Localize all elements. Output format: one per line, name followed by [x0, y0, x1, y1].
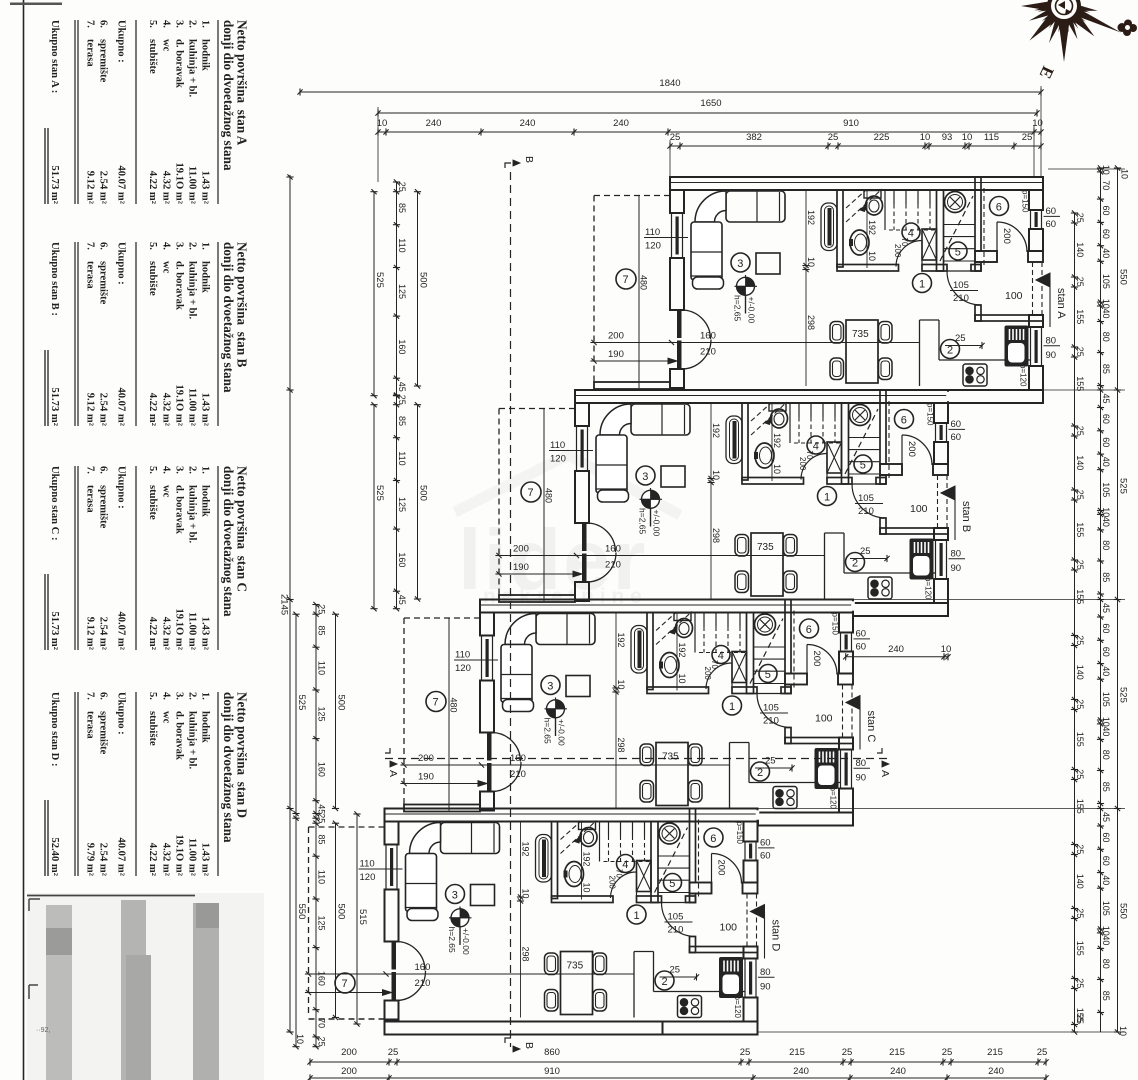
- svg-text:100: 100: [1005, 290, 1023, 302]
- svg-text:p=120: p=120: [924, 577, 933, 600]
- svg-text:2: 2: [947, 344, 953, 356]
- svg-text:60: 60: [951, 432, 962, 443]
- svg-text:85: 85: [1101, 782, 1111, 792]
- svg-text:105: 105: [1101, 274, 1111, 289]
- svg-text:7: 7: [528, 487, 534, 499]
- svg-text:25: 25: [1075, 560, 1085, 570]
- svg-text:100: 100: [720, 922, 738, 934]
- svg-text:860: 860: [544, 1047, 560, 1058]
- svg-text:2.54 m2: 2.54 m2: [98, 617, 109, 650]
- svg-text:60: 60: [1101, 856, 1111, 866]
- svg-text:200: 200: [798, 457, 807, 471]
- svg-text:125: 125: [397, 497, 407, 512]
- svg-text:25: 25: [1075, 277, 1085, 287]
- svg-text:155: 155: [1075, 799, 1085, 814]
- svg-text:1.hodnik: 1.hodnik: [200, 242, 211, 293]
- svg-text:10: 10: [806, 257, 816, 267]
- svg-text:60: 60: [760, 838, 771, 849]
- svg-text:25: 25: [1075, 213, 1085, 223]
- svg-text:stan C: stan C: [865, 711, 877, 743]
- svg-text:240: 240: [613, 118, 629, 129]
- svg-text:+/-0.00: +/-0.00: [461, 928, 471, 955]
- svg-text:7: 7: [433, 697, 439, 709]
- svg-text:Ukupno stan B :: Ukupno stan B :: [49, 242, 60, 316]
- svg-text:240: 240: [520, 118, 536, 129]
- svg-text:52.40 m2: 52.40 m2: [49, 837, 60, 876]
- svg-text:105: 105: [1101, 692, 1111, 707]
- svg-text:donji dio dvoetažnog stana: donji dio dvoetažnog stana: [221, 242, 236, 393]
- svg-text:10: 10: [616, 680, 626, 690]
- svg-text:1.hodnik: 1.hodnik: [200, 466, 211, 517]
- svg-text:298: 298: [521, 947, 531, 962]
- svg-text:200: 200: [703, 667, 712, 681]
- svg-text:60: 60: [1101, 832, 1111, 842]
- svg-text:200: 200: [341, 1066, 357, 1077]
- svg-text:192: 192: [521, 842, 531, 857]
- svg-text:125: 125: [397, 284, 407, 299]
- svg-text:25: 25: [860, 546, 871, 557]
- svg-text:155: 155: [1075, 376, 1085, 391]
- svg-text:210: 210: [953, 293, 969, 304]
- svg-text:210: 210: [700, 347, 716, 358]
- svg-text:Ukupno :: Ukupno :: [116, 692, 127, 735]
- svg-text:25: 25: [740, 1047, 751, 1058]
- svg-text:45: 45: [397, 382, 407, 392]
- svg-text:550: 550: [1118, 903, 1129, 919]
- svg-text:h=2.65: h=2.65: [447, 927, 457, 954]
- svg-text:210: 210: [763, 716, 779, 727]
- svg-text:B: B: [523, 1042, 535, 1049]
- svg-text:25: 25: [317, 813, 327, 823]
- svg-text:10: 10: [867, 251, 877, 261]
- svg-text:25: 25: [842, 1047, 853, 1058]
- svg-text:25: 25: [765, 756, 776, 767]
- svg-text:25: 25: [1075, 1014, 1085, 1024]
- svg-text:stan B: stan B: [960, 501, 972, 532]
- svg-text:7.terasa: 7.terasa: [85, 242, 96, 289]
- svg-text:4.32 m2: 4.32 m2: [161, 617, 172, 650]
- svg-text:7: 7: [342, 978, 348, 990]
- svg-text:stan D: stan D: [770, 920, 782, 952]
- svg-text:10: 10: [1120, 169, 1130, 179]
- svg-text:192: 192: [677, 643, 687, 658]
- svg-text:25: 25: [1075, 426, 1085, 436]
- svg-text:200: 200: [716, 860, 727, 876]
- svg-text:p=120: p=120: [733, 996, 742, 1019]
- svg-text:85: 85: [1101, 572, 1111, 582]
- svg-text:45: 45: [1101, 394, 1111, 404]
- svg-text:p=150: p=150: [926, 403, 935, 426]
- svg-text:Ukupno stan A :: Ukupno stan A :: [49, 20, 60, 93]
- svg-text:60: 60: [1046, 219, 1057, 230]
- svg-text:B: B: [523, 156, 535, 163]
- svg-text:70: 70: [317, 1018, 327, 1028]
- svg-text:160: 160: [397, 339, 407, 354]
- svg-text:155: 155: [1075, 941, 1085, 956]
- svg-text:735: 735: [662, 752, 679, 763]
- svg-text:25: 25: [828, 132, 839, 143]
- svg-text:40.07 m2: 40.07 m2: [116, 611, 127, 650]
- svg-text:115: 115: [984, 132, 999, 143]
- svg-text:60: 60: [856, 629, 867, 640]
- svg-text:210: 210: [858, 506, 874, 517]
- svg-text:40: 40: [1101, 309, 1111, 319]
- svg-text:192: 192: [806, 210, 816, 225]
- svg-text:200: 200: [906, 441, 917, 457]
- svg-text:110: 110: [397, 451, 407, 465]
- svg-text:2: 2: [662, 976, 668, 988]
- svg-text:25: 25: [1037, 1047, 1048, 1058]
- svg-text:85: 85: [397, 203, 407, 213]
- svg-text:190: 190: [513, 562, 529, 573]
- svg-text:110: 110: [397, 238, 407, 252]
- svg-text:10: 10: [582, 883, 592, 893]
- svg-text:192: 192: [711, 423, 721, 438]
- svg-text:25: 25: [670, 132, 681, 143]
- svg-text:25: 25: [1075, 908, 1085, 918]
- svg-text:5: 5: [860, 459, 866, 471]
- svg-text:40: 40: [1101, 666, 1111, 676]
- svg-text:40: 40: [1101, 875, 1111, 885]
- svg-text:120: 120: [455, 663, 471, 674]
- svg-text:4.32 m2: 4.32 m2: [161, 171, 172, 204]
- svg-text:stan A: stan A: [1055, 288, 1067, 319]
- svg-text:155: 155: [1075, 589, 1085, 604]
- svg-text:160: 160: [317, 971, 327, 986]
- svg-text:9.12 m2: 9.12 m2: [85, 617, 96, 650]
- svg-text:4: 4: [622, 859, 628, 871]
- svg-text:10: 10: [521, 889, 531, 899]
- svg-text:525: 525: [1118, 687, 1129, 703]
- svg-text:5: 5: [765, 669, 771, 681]
- svg-text:25: 25: [1075, 844, 1085, 854]
- svg-text:25: 25: [955, 333, 966, 344]
- svg-text:2.54 m2: 2.54 m2: [98, 393, 109, 426]
- svg-text:40.07 m2: 40.07 m2: [116, 165, 127, 204]
- svg-text:p=120: p=120: [829, 787, 838, 810]
- svg-text:25: 25: [1075, 635, 1085, 645]
- svg-text:h=2.65: h=2.65: [638, 508, 648, 535]
- svg-text:donji dio dvoetažnog stana: donji dio dvoetažnog stana: [221, 466, 236, 617]
- svg-text:25: 25: [1075, 699, 1085, 709]
- svg-text:160: 160: [700, 331, 716, 342]
- svg-text:51.73 m2: 51.73 m2: [49, 387, 60, 426]
- svg-text:105: 105: [1101, 901, 1111, 916]
- svg-text:40: 40: [1101, 726, 1111, 736]
- svg-text:10: 10: [920, 132, 931, 143]
- svg-text:240: 240: [793, 1066, 809, 1077]
- svg-text:10: 10: [962, 132, 973, 143]
- svg-text:19.1O m2: 19.1O m2: [174, 384, 185, 426]
- svg-text:4.32 m2: 4.32 m2: [161, 843, 172, 876]
- svg-text:25: 25: [397, 182, 407, 192]
- svg-text:5: 5: [669, 878, 675, 890]
- svg-text:1.43 m2: 1.43 m2: [200, 843, 211, 876]
- svg-text:140: 140: [1075, 665, 1085, 680]
- svg-text:240: 240: [988, 1066, 1004, 1077]
- svg-text:90: 90: [951, 563, 962, 574]
- svg-text:735: 735: [567, 961, 584, 972]
- svg-text:60: 60: [1101, 206, 1111, 216]
- svg-text:110: 110: [645, 227, 660, 238]
- svg-text:10: 10: [772, 464, 782, 474]
- svg-text:60: 60: [856, 642, 867, 653]
- svg-text:h=2.65: h=2.65: [733, 295, 743, 322]
- svg-text:125: 125: [317, 707, 327, 722]
- svg-text:25: 25: [1075, 978, 1085, 988]
- svg-text:93: 93: [942, 132, 953, 143]
- svg-text:298: 298: [806, 315, 816, 330]
- svg-text:Ukupno :: Ukupno :: [116, 20, 127, 63]
- svg-text:4.22 m2: 4.22 m2: [147, 393, 158, 426]
- svg-text:105: 105: [763, 703, 779, 714]
- svg-text:2.54 m2: 2.54 m2: [98, 843, 109, 876]
- svg-text:donji dio dvoetažnog stana: donji dio dvoetažnog stana: [221, 20, 236, 171]
- svg-text:+/-0.00: +/-0.00: [557, 719, 567, 746]
- svg-text:25: 25: [397, 395, 407, 405]
- svg-text:225: 225: [874, 132, 890, 143]
- svg-text:5: 5: [955, 246, 961, 258]
- svg-text:100: 100: [815, 713, 833, 725]
- svg-text:3: 3: [642, 471, 648, 483]
- svg-text:298: 298: [616, 738, 626, 753]
- svg-text:··92,: ··92,: [36, 1027, 50, 1034]
- svg-text:25: 25: [942, 1047, 953, 1058]
- svg-text:160: 160: [415, 962, 431, 973]
- svg-text:40: 40: [1101, 517, 1111, 527]
- svg-text:4: 4: [718, 650, 724, 662]
- svg-text:9.12 m2: 9.12 m2: [85, 171, 96, 204]
- svg-text:525: 525: [374, 272, 385, 288]
- svg-text:1.43 m2: 1.43 m2: [200, 617, 211, 650]
- svg-text:Ukupno :: Ukupno :: [116, 242, 127, 285]
- svg-text:85: 85: [317, 835, 327, 845]
- svg-text:1: 1: [824, 491, 830, 503]
- svg-text:40: 40: [1101, 457, 1111, 467]
- svg-text:210: 210: [510, 769, 526, 780]
- svg-text:500: 500: [418, 272, 429, 288]
- svg-text:1.43 m2: 1.43 m2: [200, 171, 211, 204]
- svg-text:70: 70: [1101, 180, 1111, 190]
- svg-text:40: 40: [1101, 935, 1111, 945]
- svg-text:120: 120: [550, 454, 566, 465]
- svg-text:192: 192: [582, 852, 592, 867]
- svg-text:85: 85: [397, 416, 407, 426]
- svg-text:500: 500: [418, 485, 429, 501]
- svg-text:A: A: [387, 770, 399, 777]
- svg-text:550: 550: [1118, 269, 1129, 285]
- svg-text:60: 60: [1101, 623, 1111, 633]
- svg-text:11.00 m2: 11.00 m2: [187, 612, 198, 650]
- svg-text:105: 105: [1101, 482, 1111, 497]
- svg-text:192: 192: [772, 433, 782, 448]
- svg-text:25: 25: [1075, 769, 1085, 779]
- svg-text:190: 190: [418, 772, 434, 783]
- svg-text:1.43 m2: 1.43 m2: [200, 393, 211, 426]
- svg-text:3: 3: [547, 680, 553, 692]
- svg-text:2: 2: [852, 557, 858, 569]
- svg-text:51.73 m2: 51.73 m2: [49, 165, 60, 204]
- svg-text:110: 110: [317, 870, 327, 884]
- svg-text:19.1O m2: 19.1O m2: [174, 162, 185, 204]
- svg-text:192: 192: [616, 633, 626, 648]
- svg-text:6: 6: [806, 624, 812, 636]
- svg-text:6: 6: [996, 201, 1002, 213]
- svg-text:735: 735: [852, 329, 869, 340]
- svg-text:240: 240: [890, 1066, 906, 1077]
- svg-text:40.07 m2: 40.07 m2: [116, 837, 127, 876]
- svg-text:p=150: p=150: [1021, 190, 1030, 213]
- svg-text:120: 120: [360, 872, 376, 883]
- svg-text:120: 120: [645, 241, 661, 252]
- svg-text:85: 85: [1101, 991, 1111, 1001]
- svg-text:298: 298: [711, 528, 721, 543]
- svg-text:7.terasa: 7.terasa: [85, 466, 96, 513]
- svg-text:100: 100: [910, 503, 928, 515]
- svg-text:215: 215: [987, 1047, 1003, 1058]
- svg-text:160: 160: [317, 762, 327, 777]
- svg-text:2: 2: [757, 767, 763, 779]
- svg-text:h=2.65: h=2.65: [543, 718, 553, 745]
- svg-text:9.12 m2: 9.12 m2: [85, 393, 96, 426]
- svg-text:45: 45: [397, 595, 407, 605]
- svg-text:25: 25: [1075, 347, 1085, 357]
- svg-text:+/-0.00: +/-0.00: [652, 510, 662, 537]
- svg-text:200: 200: [341, 1047, 357, 1058]
- svg-text:105: 105: [953, 280, 969, 291]
- svg-text:4: 4: [908, 227, 914, 239]
- svg-text:11.00 m2: 11.00 m2: [187, 166, 198, 204]
- svg-text:80: 80: [1101, 959, 1111, 969]
- svg-text:140: 140: [1075, 455, 1085, 470]
- svg-text:210: 210: [668, 925, 684, 936]
- svg-text:500: 500: [336, 904, 347, 920]
- svg-text:25: 25: [388, 1047, 399, 1058]
- svg-text:160: 160: [397, 552, 407, 567]
- svg-text:215: 215: [789, 1047, 805, 1058]
- svg-text:1840: 1840: [659, 78, 680, 89]
- svg-text:Ukupno :: Ukupno :: [116, 466, 127, 509]
- svg-text:90: 90: [760, 982, 771, 993]
- svg-text:p=150: p=150: [735, 822, 744, 845]
- svg-text:45: 45: [1101, 603, 1111, 613]
- svg-text:4: 4: [813, 440, 819, 452]
- svg-text:51.73 m2: 51.73 m2: [49, 611, 60, 650]
- svg-text:80: 80: [1101, 540, 1111, 550]
- svg-text:25: 25: [1022, 132, 1033, 143]
- svg-text:10: 10: [677, 674, 687, 684]
- svg-text:240: 240: [426, 118, 442, 129]
- svg-text:210: 210: [415, 978, 431, 989]
- svg-text:200: 200: [608, 876, 617, 890]
- svg-text:480: 480: [449, 698, 459, 713]
- svg-text:11.00 m2: 11.00 m2: [187, 838, 198, 876]
- svg-text:155: 155: [1075, 309, 1085, 324]
- svg-text:25: 25: [670, 965, 681, 976]
- svg-text:4.22 m2: 4.22 m2: [147, 843, 158, 876]
- svg-text:1: 1: [919, 278, 925, 290]
- svg-text:25: 25: [317, 1037, 327, 1047]
- svg-text:910: 910: [544, 1066, 560, 1077]
- svg-text:140: 140: [1075, 242, 1085, 257]
- svg-text:125: 125: [317, 916, 327, 931]
- svg-text:1: 1: [729, 701, 735, 713]
- svg-text:10: 10: [711, 470, 721, 480]
- svg-text:2145: 2145: [279, 594, 290, 615]
- svg-text:60: 60: [1046, 206, 1057, 217]
- svg-text:19.1O m2: 19.1O m2: [174, 608, 185, 650]
- svg-text:160: 160: [605, 544, 621, 555]
- svg-text:190: 190: [608, 349, 624, 360]
- svg-text:Ukupno stan C :: Ukupno stan C :: [49, 466, 60, 540]
- svg-text:382: 382: [746, 132, 762, 143]
- svg-text:19.1O m2: 19.1O m2: [174, 834, 185, 876]
- svg-text:1: 1: [634, 910, 640, 922]
- svg-text:200: 200: [893, 244, 902, 258]
- svg-text:200: 200: [513, 544, 529, 555]
- svg-text:1.hodnik: 1.hodnik: [200, 20, 211, 71]
- svg-text:60: 60: [1101, 229, 1111, 239]
- svg-text:105: 105: [858, 493, 874, 504]
- svg-text:80: 80: [1101, 332, 1111, 342]
- svg-text:550: 550: [296, 904, 307, 920]
- svg-text:25: 25: [317, 604, 327, 614]
- svg-text:p=150: p=150: [831, 613, 840, 636]
- svg-text:60: 60: [951, 419, 962, 430]
- svg-text:60: 60: [1101, 414, 1111, 424]
- svg-text:25: 25: [1075, 490, 1085, 500]
- svg-text:10: 10: [941, 644, 952, 655]
- svg-text:210: 210: [605, 560, 621, 571]
- svg-text:60: 60: [1101, 647, 1111, 657]
- svg-text:155: 155: [1075, 732, 1085, 747]
- svg-text:60: 60: [760, 851, 771, 862]
- svg-text:1.hodnik: 1.hodnik: [200, 692, 211, 743]
- svg-text:80: 80: [951, 549, 962, 560]
- svg-text:A: A: [879, 770, 891, 777]
- svg-text:80: 80: [1101, 750, 1111, 760]
- svg-text:11.00 m2: 11.00 m2: [187, 388, 198, 426]
- svg-text:60: 60: [1101, 437, 1111, 447]
- svg-text:80: 80: [760, 967, 771, 978]
- svg-text:80: 80: [1046, 336, 1057, 347]
- svg-text:40.07 m2: 40.07 m2: [116, 387, 127, 426]
- svg-text:6: 6: [901, 414, 907, 426]
- svg-text:donji dio dvoetažnog stana: donji dio dvoetažnog stana: [221, 692, 236, 843]
- svg-text:7.terasa: 7.terasa: [85, 20, 96, 67]
- svg-text:110: 110: [360, 859, 375, 870]
- svg-text:525: 525: [374, 485, 385, 501]
- svg-text:525: 525: [296, 695, 307, 711]
- svg-text:7: 7: [623, 274, 629, 286]
- svg-text:9.79 m2: 9.79 m2: [85, 843, 96, 876]
- svg-text:3: 3: [737, 258, 743, 270]
- svg-text:215: 215: [889, 1047, 905, 1058]
- svg-text:110: 110: [455, 650, 470, 661]
- svg-text:7.terasa: 7.terasa: [85, 692, 96, 739]
- svg-text:4.22 m2: 4.22 m2: [147, 171, 158, 204]
- svg-text:110: 110: [550, 440, 565, 451]
- svg-text:110: 110: [317, 661, 327, 675]
- svg-text:500: 500: [336, 695, 347, 711]
- svg-text:200: 200: [608, 331, 624, 342]
- svg-text:515: 515: [357, 909, 368, 925]
- svg-text:200: 200: [1001, 228, 1012, 244]
- svg-text:1650: 1650: [700, 98, 721, 109]
- svg-text:6: 6: [710, 833, 716, 845]
- svg-text:240: 240: [888, 644, 904, 655]
- svg-text:10: 10: [1118, 1026, 1128, 1036]
